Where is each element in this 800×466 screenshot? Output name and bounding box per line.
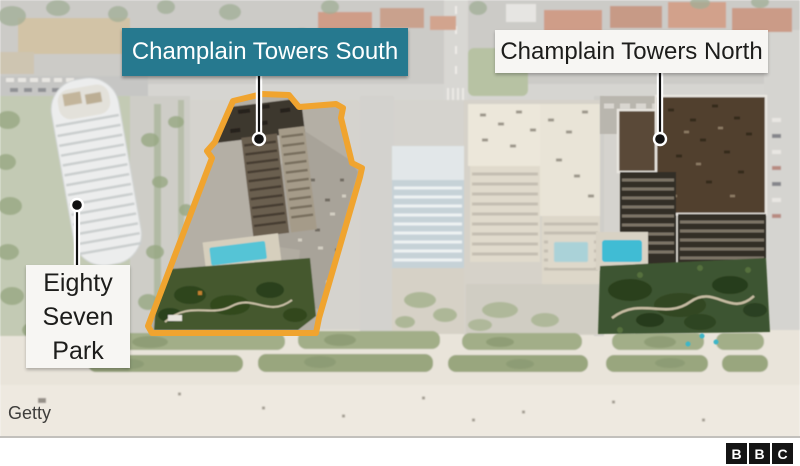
right-street xyxy=(764,30,800,330)
bbc-logo-letter: B xyxy=(731,446,741,462)
bbc-logo-block: C xyxy=(772,443,793,464)
north-label: Champlain Towers North xyxy=(495,30,768,73)
cream-building xyxy=(464,100,600,335)
north-garden xyxy=(598,258,770,334)
bbc-logo-block: B xyxy=(726,443,747,464)
bbc-logo-letter: C xyxy=(777,446,787,462)
mid-rise-blue-building xyxy=(392,146,464,334)
photo-bottom-edge xyxy=(0,436,800,438)
street-beside-south-site xyxy=(360,96,394,336)
champlain-north-site xyxy=(596,96,770,347)
south-garden xyxy=(154,258,316,330)
bbc-logo-block: B xyxy=(749,443,770,464)
south-label: Champlain Towers South xyxy=(122,28,408,76)
bbc-aerial-graphic: Champlain Towers South Champlain Towers … xyxy=(0,0,800,466)
bbc-logo: B B C xyxy=(726,443,793,464)
park-label: Eighty Seven Park xyxy=(26,265,130,368)
bbc-logo-letter: B xyxy=(754,446,764,462)
photo-credit: Getty xyxy=(8,403,51,424)
